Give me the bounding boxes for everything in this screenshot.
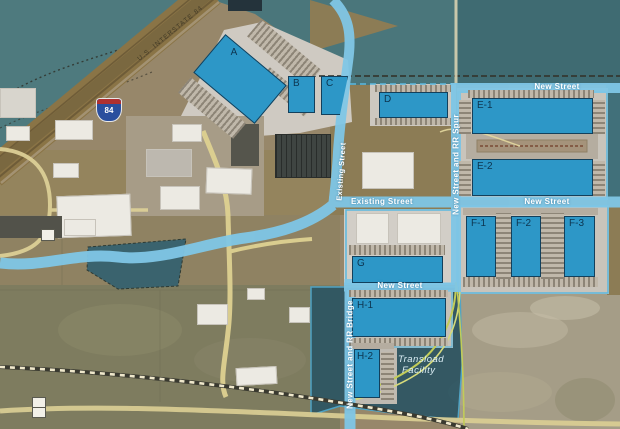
site-plan-map: A B C D E-1 E-2 F-1 F-2 F-3 G H-1 — [0, 0, 620, 429]
shield-number: 84 — [97, 104, 121, 117]
new-street-g-label: New Street — [360, 281, 440, 290]
highway-label: U.S. INTERSTATE 84 — [136, 0, 211, 62]
transload-line1: Transload — [398, 354, 474, 365]
new-street-mid-label: New Street — [507, 197, 587, 206]
interstate-84-shield-icon: 84 — [96, 98, 122, 122]
transload-facility-label: Transload Facility — [398, 354, 474, 376]
route-marker-shield-icon — [32, 407, 46, 418]
rr-spur-label: New Street and RR Spur — [452, 110, 461, 220]
existing-street-label: Existing Street — [342, 197, 422, 206]
new-street-top-label: New Street — [517, 82, 597, 91]
route-marker-shield-icon — [41, 229, 55, 241]
labels-layer: U.S. INTERSTATE 84 New Street New Street… — [0, 0, 620, 429]
transload-line2: Facility — [398, 365, 474, 376]
rr-bridge-label: New Street and RR Bridge — [346, 297, 355, 413]
